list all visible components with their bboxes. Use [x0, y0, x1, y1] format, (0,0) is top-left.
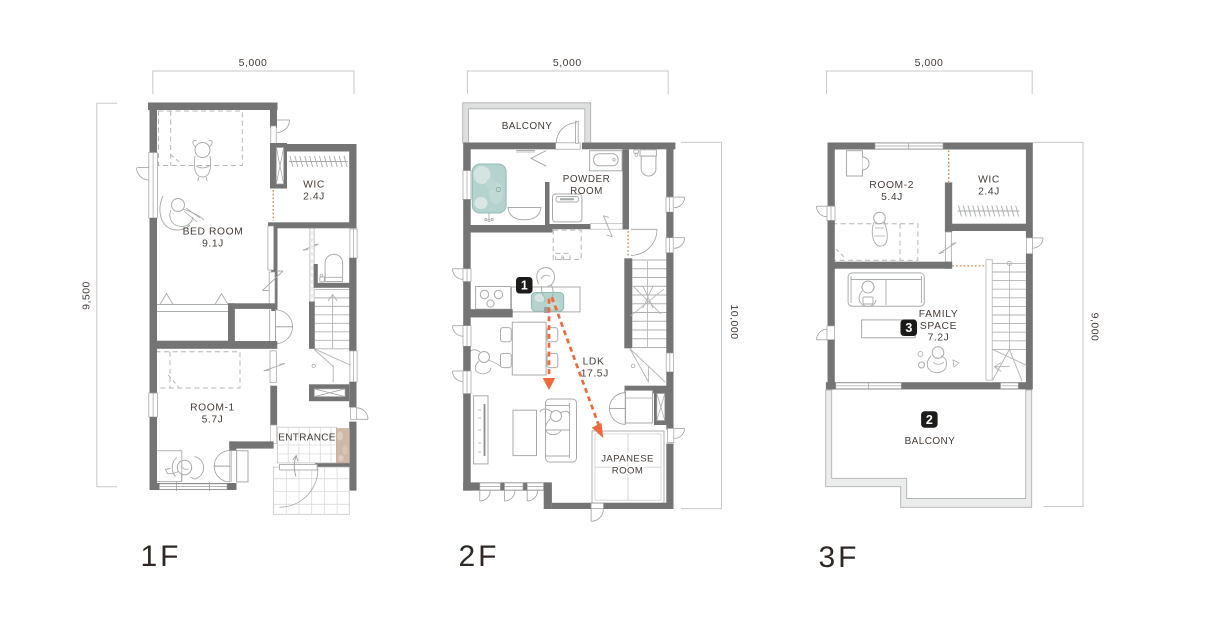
svg-text:9,500: 9,500 [81, 281, 93, 310]
svg-text:ROOM: ROOM [612, 466, 643, 477]
svg-text:POWDER: POWDER [563, 174, 610, 185]
svg-text:BALCONY: BALCONY [502, 121, 553, 132]
svg-text:17.5J: 17.5J [581, 369, 609, 380]
svg-text:9,000: 9,000 [1089, 313, 1101, 342]
svg-text:2.4J: 2.4J [978, 186, 1000, 197]
svg-text:BALCONY: BALCONY [905, 436, 956, 447]
svg-text:2.4J: 2.4J [303, 191, 325, 202]
svg-text:FAMILY: FAMILY [919, 309, 958, 320]
svg-text:WIC: WIC [978, 175, 1000, 186]
svg-text:5,000: 5,000 [553, 57, 582, 69]
svg-text:ROOM-2: ROOM-2 [869, 180, 914, 191]
svg-text:SPACE: SPACE [920, 321, 957, 332]
svg-text:2F: 2F [458, 540, 499, 573]
svg-text:1: 1 [521, 279, 528, 293]
svg-text:3F: 3F [818, 541, 859, 574]
svg-text:5.4J: 5.4J [881, 192, 903, 203]
svg-text:3: 3 [905, 321, 912, 335]
svg-text:2: 2 [926, 413, 933, 427]
svg-text:BED ROOM: BED ROOM [183, 227, 244, 238]
svg-text:5.7J: 5.7J [202, 414, 224, 425]
svg-text:10,000: 10,000 [728, 304, 740, 339]
svg-text:1F: 1F [140, 540, 181, 573]
svg-text:WIC: WIC [303, 180, 325, 191]
svg-text:ROOM: ROOM [570, 186, 603, 197]
svg-text:JAPANESE: JAPANESE [601, 454, 654, 465]
svg-text:7.2J: 7.2J [928, 333, 950, 344]
svg-text:5,000: 5,000 [915, 57, 944, 69]
svg-text:5,000: 5,000 [239, 57, 268, 69]
svg-text:ENTRANCE: ENTRANCE [278, 433, 335, 444]
svg-text:ROOM-1: ROOM-1 [190, 403, 235, 414]
svg-text:LDK: LDK [583, 357, 605, 368]
svg-text:9.1J: 9.1J [202, 239, 224, 250]
